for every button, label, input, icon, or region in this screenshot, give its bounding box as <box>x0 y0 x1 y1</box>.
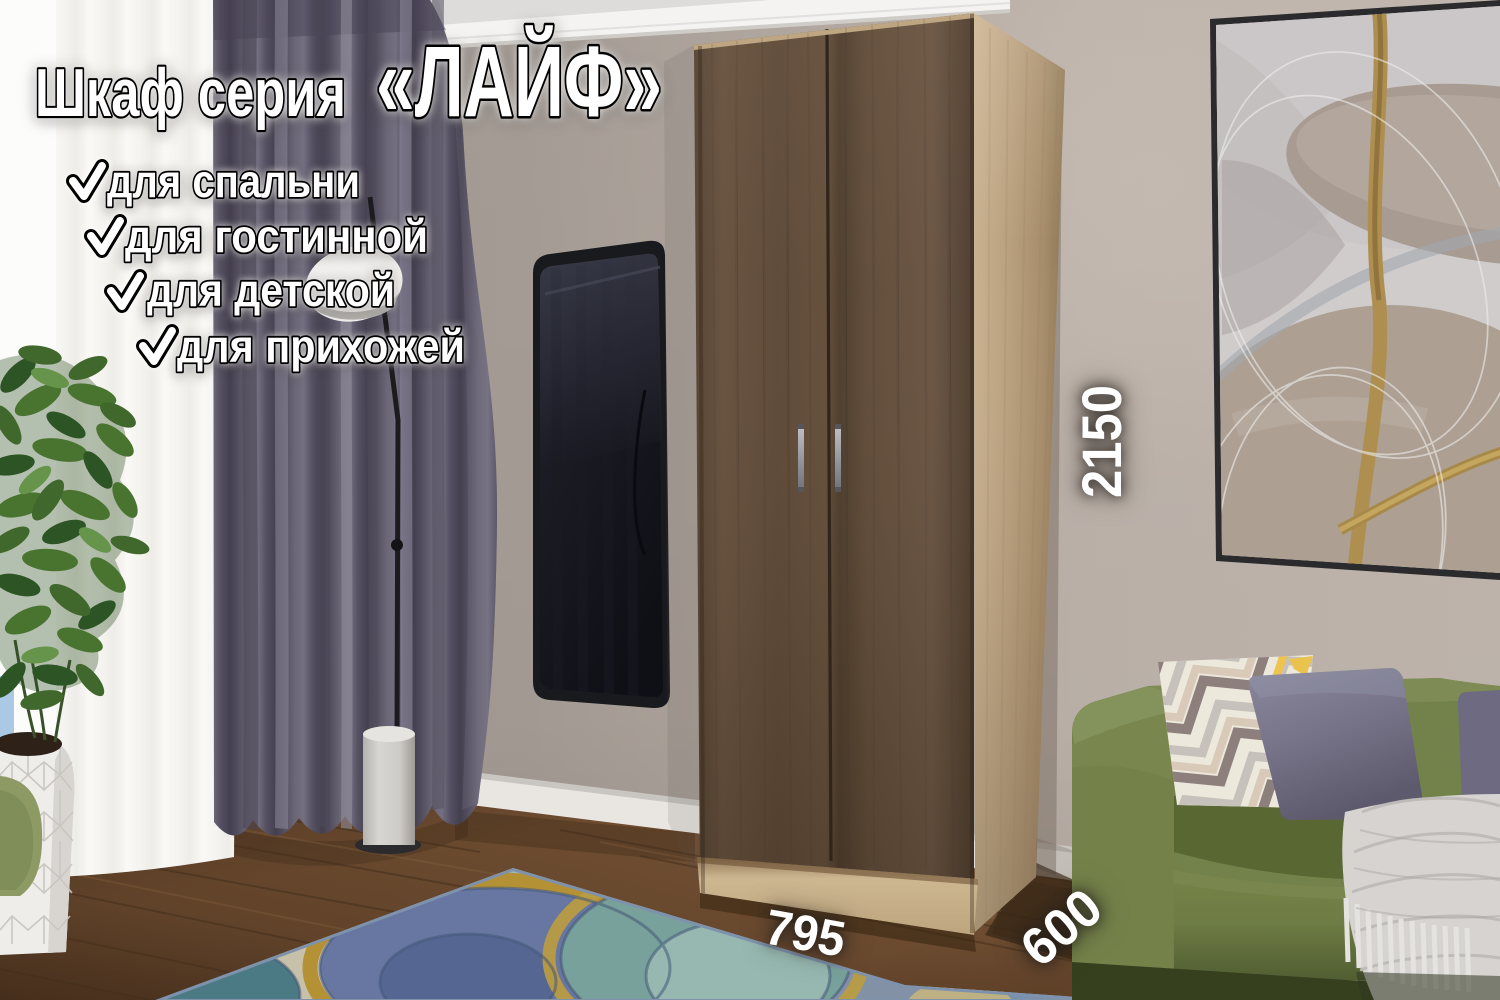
svg-text:для детской: для детской <box>147 264 395 316</box>
svg-text:2150: 2150 <box>1070 385 1133 498</box>
svg-text:для гостинной: для гостинной <box>125 210 428 262</box>
svg-text:для спальни: для спальни <box>107 155 360 207</box>
svg-text:«ЛАЙФ»: «ЛАЙФ» <box>376 25 662 138</box>
svg-text:Шкаф серия: Шкаф серия <box>35 55 346 131</box>
svg-text:для прихожей: для прихожей <box>177 320 465 372</box>
